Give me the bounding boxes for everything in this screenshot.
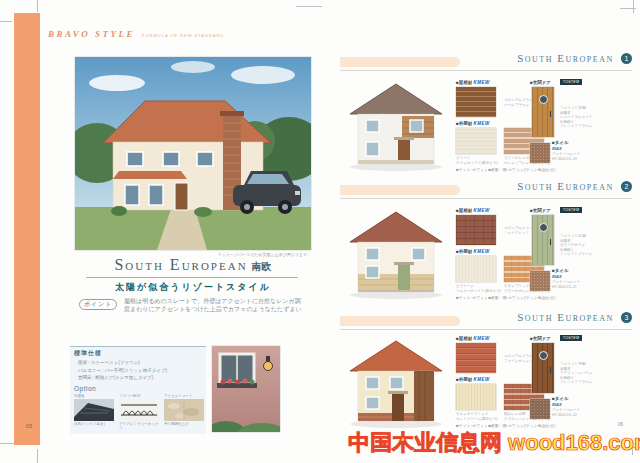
section-2-header: South European 2 <box>340 180 632 192</box>
wall-swatch-1 <box>456 256 496 282</box>
kmew-logo: KMEW <box>473 208 489 213</box>
tile-label: ■タイル <box>552 140 569 145</box>
watermark-text: 中国木业信息网 wood168.com <box>348 428 640 458</box>
tile-swatch <box>530 143 550 163</box>
crop-mark <box>0 21 12 22</box>
option-item-flower-box: フラワーBOX アイアンフラワーボックス <box>119 394 159 430</box>
section-title: South European <box>517 311 614 323</box>
door-caption: ファミット7F型 採風窓 アイリッシュパイン 鋳物飾り プレシャスブラウン <box>560 362 592 385</box>
entrance-door-swatch <box>532 87 554 137</box>
tile-label: ■タイル <box>552 396 569 401</box>
house-rendering-1 <box>342 76 450 172</box>
spec-row: 玄関扉 : 断熱ドア(ランマ無しタイプ) <box>78 374 167 382</box>
flower-box-option-image <box>119 399 159 421</box>
crop-mark <box>37 0 38 12</box>
crop-mark <box>633 0 634 13</box>
wall-caption-1: モエンサイディング サンドクリーム(親水セラ) <box>456 412 498 421</box>
left-accent-strip <box>14 13 40 445</box>
inax-logo: INAX <box>552 402 562 407</box>
section-divider <box>340 198 632 199</box>
roof-tile-option-image <box>74 399 114 421</box>
wall-material-label: ■外壁材 KMEW <box>456 121 490 126</box>
section-number-badge: 2 <box>621 181 632 192</box>
wall-material-label: ■外壁材 KMEW <box>456 249 490 254</box>
spec-heading: 標準仕様 <box>74 349 102 358</box>
roof-swatch <box>456 87 496 117</box>
option-item-roof-tile: 瓦屋根 洋瓦(ミックス葺き) <box>74 394 114 426</box>
option-caption: 塗り壁調仕上げ <box>164 422 204 426</box>
section-1-header: South European 1 <box>340 52 632 64</box>
wall-caption-1: セラトーン ミルキーホワイト(親水セラ) <box>456 284 501 293</box>
entrance-door-swatch <box>532 215 554 265</box>
point-badge: ポイント <box>79 299 117 310</box>
section-3-header: South European 3 <box>340 311 632 323</box>
crop-mark <box>0 443 14 444</box>
crop-mark <box>37 449 38 463</box>
materials-panel-1: ■屋根材 KMEW コロニアルグランデ クールブラウン ■外壁材 KMEW クリ… <box>456 80 640 172</box>
materials-panel-2: ■屋根材 KMEW コロニアルクァッド シェイドレッド ■外壁材 KMEW セラ… <box>456 208 640 300</box>
roof-material-label: ■屋根材 KMEW <box>456 336 490 341</box>
house-rendering-2 <box>342 204 450 300</box>
section-divider <box>340 70 632 71</box>
title-divider <box>86 277 298 278</box>
tile-swatch <box>530 399 550 419</box>
tile-label: ■タイル <box>552 268 569 273</box>
kmew-logo: KMEW <box>473 121 489 126</box>
option-caption: 洋瓦(ミックス葺き) <box>74 422 114 426</box>
crop-mark <box>296 6 322 7</box>
entrance-detail-photo <box>212 346 280 432</box>
page-title: South European南欧 <box>75 256 311 274</box>
tile-swatch <box>530 271 550 291</box>
roof-swatch <box>456 215 496 245</box>
section-title: South European <box>517 52 614 64</box>
option-heading: Option <box>74 385 96 392</box>
tile-caption: アンティコレート HT-200/COL-12 <box>552 408 581 417</box>
catalog-spread: 05 BRAVO STYLE FORMULA OF NEW STANDARD <box>0 0 640 463</box>
spec-row: バルコニー : バー手摺(スリット格子タイプ) <box>78 367 167 375</box>
page-number-left: 05 <box>26 423 33 429</box>
house-rendering-3 <box>342 333 450 429</box>
tostem-logo: TOSTEM <box>560 335 582 341</box>
wall-material-label: ■外壁材 KMEW <box>456 377 490 382</box>
section-number-badge: 3 <box>621 312 632 323</box>
roof-material-label: ■屋根材 KMEW <box>456 80 490 85</box>
kmew-logo: KMEW <box>473 377 489 382</box>
spec-rows: 屋根 : カラーベスト(ブラウン) バルコニー : バー手摺(スリット格子タイプ… <box>78 359 167 382</box>
materials-panel-3: ■屋根材 KMEW コロニアルグランデ ファインオレンジ ■外壁材 KMEW モ… <box>456 336 640 428</box>
kmew-logo: KMEW <box>473 336 489 341</box>
door-caption: ファミット5C型 採風窓 ガラスデザイン 鋳物飾り フォレストグリーン <box>560 234 592 257</box>
entrance-door-label: ■玄関ドア <box>530 208 551 213</box>
inax-logo: INAX <box>552 274 562 279</box>
page-number-right: 06 <box>618 422 623 427</box>
roof-material-label: ■屋根材 KMEW <box>456 208 490 213</box>
inax-logo: INAX <box>552 146 562 151</box>
main-house-rendering <box>75 57 311 250</box>
page-title-jp: 南欧 <box>252 261 272 272</box>
point-description: 屋根は明るめのスレートで、外壁はアクセントに自然なレンガ調 窓まわりにアクセント… <box>124 297 314 313</box>
kmew-logo: KMEW <box>473 249 489 254</box>
section-number-badge: 1 <box>621 53 632 64</box>
entrance-door-swatch <box>532 343 554 393</box>
accent-coat-option-image <box>164 399 204 421</box>
page-subtitle: 太陽が似合うリゾートスタイル <box>75 281 311 294</box>
tile-caption: アンティコレート HT-200/COL-21 <box>552 280 581 289</box>
entrance-door-label: ■玄関ドア <box>530 80 551 85</box>
wall-caption-1: クリート チタンホワイト(親水セラ) <box>456 156 498 165</box>
sash-footnote: ■サッシ:ホワイト■破風・樋:ホワイト(サッシ色合わせ) <box>456 167 555 172</box>
spec-row: 屋根 : カラーベスト(ブラウン) <box>78 359 167 367</box>
tile-caption: アンティコレート HT-200/COL-13 <box>552 152 581 161</box>
roof-swatch <box>456 343 496 373</box>
page-title-en: South European <box>114 256 247 273</box>
option-item-accent-coat: アクセントコート 塗り壁調仕上げ <box>164 394 204 426</box>
kmew-logo: KMEW <box>473 80 489 85</box>
section-title: South European <box>517 180 614 192</box>
brand-tagline: FORMULA OF NEW STANDARD <box>142 33 224 38</box>
section-divider <box>340 329 632 330</box>
brand-title: BRAVO STYLE <box>48 29 135 39</box>
door-caption: ファミット7D型 採風窓 ニュートラルウッド 鋳物飾り プレシャスブラウン <box>560 106 592 129</box>
tostem-logo: TOSTEM <box>560 79 582 85</box>
wall-swatch-1 <box>456 128 496 154</box>
sash-footnote: ■サッシ:ホワイト■破風・樋:ホワイト(サッシ色合わせ) <box>456 295 555 300</box>
tostem-logo: TOSTEM <box>560 207 582 213</box>
entrance-door-label: ■玄関ドア <box>530 336 551 341</box>
option-caption: アイアンフラワーボックス <box>119 422 159 430</box>
wall-swatch-1 <box>456 384 496 410</box>
